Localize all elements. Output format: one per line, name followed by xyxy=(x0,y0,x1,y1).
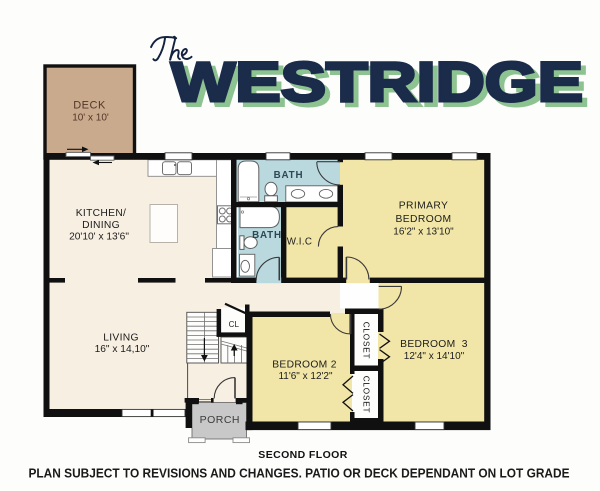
svg-text:10' x 10': 10' x 10' xyxy=(72,113,109,124)
svg-text:DECK: DECK xyxy=(73,100,106,112)
svg-text:SECOND FLOOR: SECOND FLOOR xyxy=(258,449,347,461)
svg-text:PORCH: PORCH xyxy=(200,414,240,426)
svg-text:20'10' x 13'6": 20'10' x 13'6" xyxy=(69,232,129,243)
svg-text:BEDROOM 3: BEDROOM 3 xyxy=(400,339,468,350)
svg-text:16'2" x 13'10": 16'2" x 13'10" xyxy=(393,227,454,238)
svg-text:DINING: DINING xyxy=(82,220,120,231)
svg-text:BEDROOM: BEDROOM xyxy=(395,214,451,225)
svg-text:BATH: BATH xyxy=(252,230,282,241)
svg-text:W.I.C: W.I.C xyxy=(287,237,312,248)
svg-text:CLOSET: CLOSET xyxy=(362,376,371,414)
svg-text:CLOSET: CLOSET xyxy=(362,322,371,360)
svg-text:KITCHEN/: KITCHEN/ xyxy=(76,208,126,219)
svg-text:CL: CL xyxy=(229,320,240,329)
svg-text:PLAN SUBJECT TO REVISIONS AND: PLAN SUBJECT TO REVISIONS AND CHANGES. P… xyxy=(29,466,570,481)
svg-text:12'4" x 14'10": 12'4" x 14'10" xyxy=(404,351,465,362)
svg-text:16" x 14,10": 16" x 14,10" xyxy=(95,344,150,355)
svg-text:WESTRIDGE: WESTRIDGE xyxy=(171,51,583,113)
svg-text:PRIMARY: PRIMARY xyxy=(399,201,449,212)
svg-text:BEDROOM 2: BEDROOM 2 xyxy=(272,360,337,371)
svg-text:LIVING: LIVING xyxy=(103,333,139,344)
svg-text:BATH: BATH xyxy=(274,170,304,181)
svg-text:11'6" x 12'2": 11'6" x 12'2" xyxy=(278,371,333,382)
